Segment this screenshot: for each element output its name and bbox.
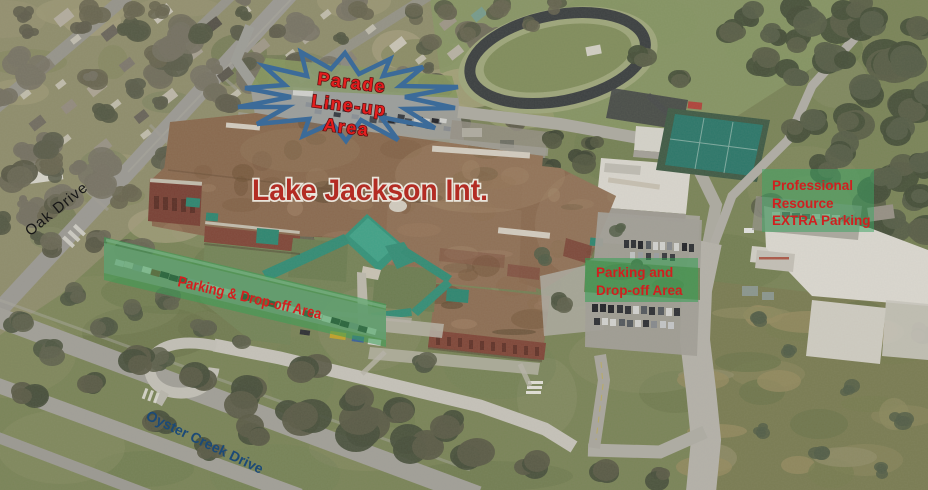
svg-text:Resource: Resource [772, 196, 834, 211]
svg-text:Lake Jackson Int.: Lake Jackson Int. [252, 174, 488, 207]
svg-text:Drop-off Area: Drop-off Area [596, 283, 683, 298]
svg-text:EXTRA Parking: EXTRA Parking [772, 213, 871, 228]
svg-text:Parking and: Parking and [596, 265, 673, 280]
svg-text:Professional: Professional [772, 178, 853, 193]
